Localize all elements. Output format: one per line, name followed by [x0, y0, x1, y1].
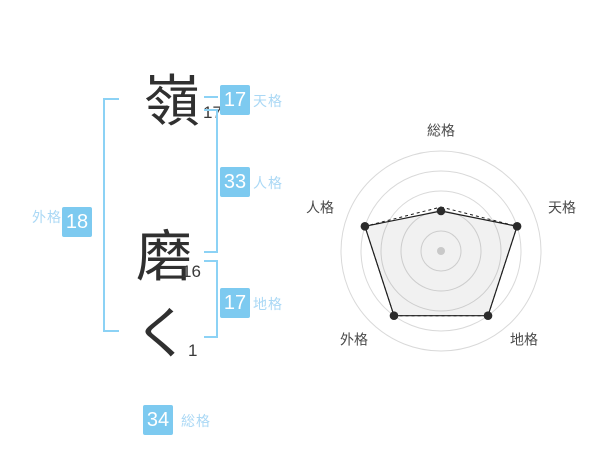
gaikaku-badge: 18 — [62, 207, 92, 237]
radar-axis-label: 地格 — [510, 332, 538, 348]
soukaku-badge: 34 — [143, 405, 173, 435]
radar-vertex-dot — [513, 222, 522, 231]
chikaku-badge: 17 — [220, 288, 250, 318]
radar-vertex-dot — [361, 222, 370, 231]
gaikaku-bracket — [103, 98, 119, 332]
radar-axis-label: 人格 — [306, 200, 334, 216]
radar-axis-label: 外格 — [340, 332, 368, 348]
name-char-3: く — [134, 306, 190, 362]
radar-vertex-dot — [484, 311, 493, 320]
radar-axis-label: 天格 — [548, 200, 576, 216]
radar-chart: 総格天格地格外格人格 — [300, 100, 600, 390]
name-char-2-strokes: 16 — [182, 263, 201, 280]
name-char-1: 嶺 — [144, 74, 200, 130]
name-char-3-strokes: 1 — [188, 342, 197, 359]
jinkaku-label: 人格 — [253, 176, 283, 190]
tenkaku-tick — [204, 96, 218, 98]
gaikaku-label: 外格 — [32, 210, 62, 224]
radar-axis-label: 総格 — [427, 123, 455, 139]
tenkaku-badge: 17 — [220, 85, 250, 115]
radar-vertex-dot — [390, 311, 399, 320]
radar-center-dot — [437, 247, 445, 255]
soukaku-label: 総格 — [181, 414, 211, 428]
chikaku-label: 地格 — [253, 297, 283, 311]
name-fortune-panel: 嶺 17 磨 16 く 1 外格 18 17 天格 33 人格 17 地格 34… — [0, 0, 600, 470]
jinkaku-badge: 33 — [220, 167, 250, 197]
tenkaku-label: 天格 — [253, 94, 283, 108]
radar-series-solid — [365, 211, 517, 316]
jinkaku-bracket — [204, 109, 218, 253]
chikaku-bracket — [204, 260, 218, 338]
radar-vertex-dot — [437, 207, 446, 216]
